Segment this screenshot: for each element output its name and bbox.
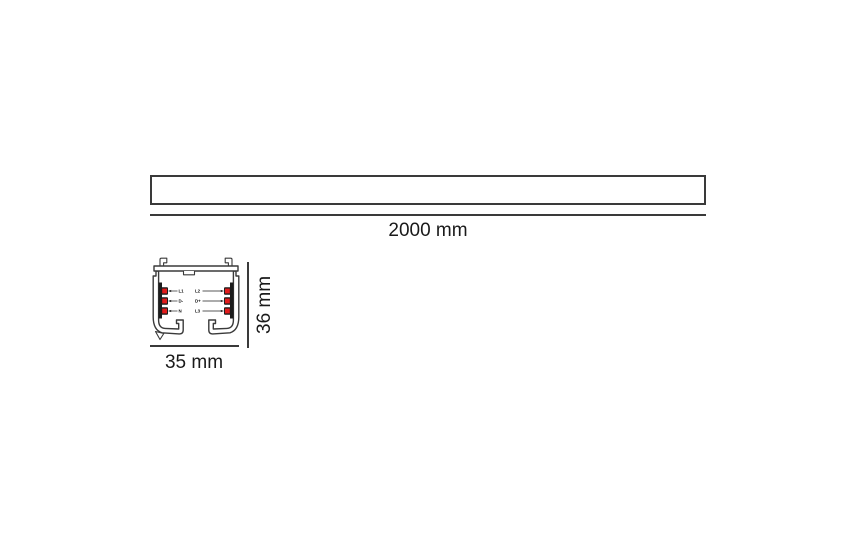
contact-l3 — [225, 309, 230, 314]
left-leader-lines — [168, 290, 178, 312]
length-dimension-line — [150, 214, 706, 216]
contact-l1 — [162, 289, 167, 294]
contact-l2 — [225, 289, 230, 294]
profile-right-wall — [209, 271, 239, 334]
conductor-label-l1: L1 — [179, 289, 185, 294]
conductor-label-d-minus: D- — [179, 299, 184, 304]
profile-center-notch — [184, 271, 195, 275]
track-cross-section: L1 D- N L2 D+ L3 — [150, 256, 242, 348]
contact-d-minus — [162, 299, 167, 304]
conductor-label-l2: L2 — [195, 289, 201, 294]
conductor-label-l3: L3 — [195, 309, 201, 314]
conductor-label-d-plus: D+ — [195, 299, 201, 304]
height-dimension-label: 36 mm — [252, 260, 278, 350]
contact-n — [162, 309, 167, 314]
conductor-label-n: N — [179, 309, 182, 314]
width-dimension-line — [150, 345, 239, 347]
contact-d-plus — [225, 299, 230, 304]
technical-drawing-canvas: 2000 mm — [0, 0, 856, 540]
left-insulator-comb — [159, 283, 168, 319]
right-leader-lines — [203, 290, 225, 312]
length-dimension-label: 2000 mm — [150, 220, 706, 242]
right-insulator-comb — [224, 283, 233, 319]
height-dimension-line — [247, 262, 249, 348]
width-dimension-label: 35 mm — [142, 352, 246, 374]
track-side-view — [150, 175, 706, 205]
profile-top-wall — [154, 266, 238, 271]
